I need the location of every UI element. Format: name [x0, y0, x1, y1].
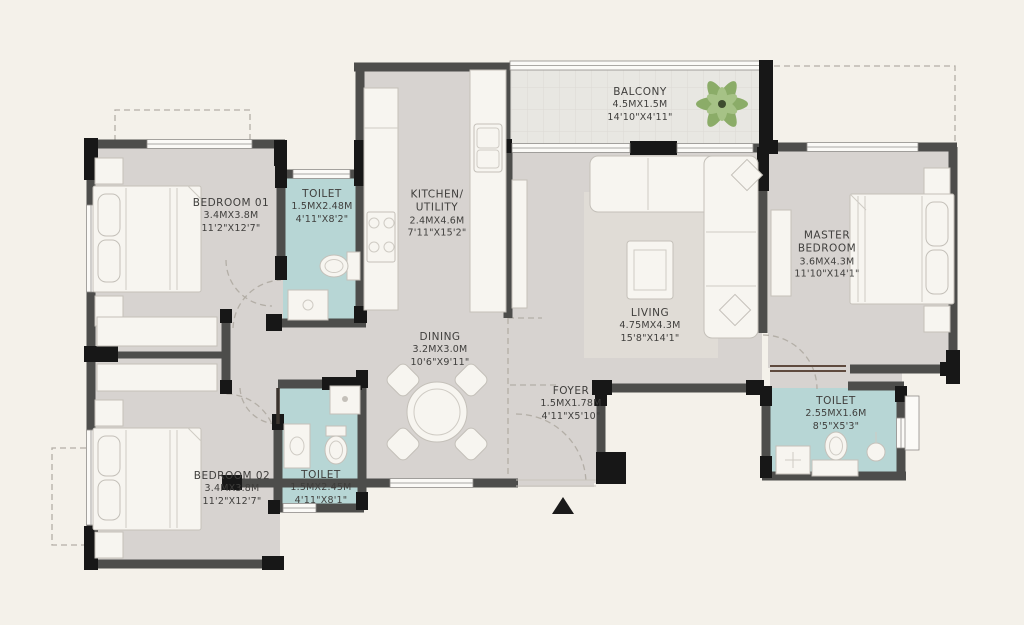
room-label-kitchen-utility: KITCHEN/ UTILITY 2.4MX4.6M 7'11"X15'2": [401, 188, 473, 239]
bedroom01-furniture: [93, 158, 217, 346]
window-toilet01-top: [293, 170, 350, 179]
kitchen-counter: [364, 88, 398, 310]
side-table-icon: [924, 306, 950, 332]
side-table-icon: [95, 532, 123, 558]
room-label-toilet02: TOILET 1.5MX2.45M 4'11"X8'1": [282, 469, 360, 507]
washbasin-icon: [288, 290, 328, 320]
wardrobe-icon: [771, 210, 791, 296]
bed-icon: [93, 186, 201, 292]
side-table-icon: [95, 400, 123, 426]
room-label-dining: DINING 3.2MX3.0M 10'6"X9'11": [393, 331, 487, 369]
dining-table-icon: [407, 382, 467, 442]
wardrobe-icon: [97, 317, 217, 346]
room-label-living: LIVING 4.75MX4.3M 15'8"X14'1": [595, 307, 705, 345]
window-bedroom01-top: [147, 140, 252, 149]
window-toilet-master-right: [897, 418, 906, 448]
hob-icon: [367, 212, 395, 262]
sink-icon: [474, 124, 502, 172]
room-label-toilet01: TOILET 1.5MX2.48M 4'11"X8'2": [283, 188, 361, 226]
room-label-balcony: BALCONY 4.5MX1.5M 14'10"X4'11": [585, 86, 695, 124]
window-balcony-right: [677, 144, 753, 153]
ledge-outline-master: [772, 66, 955, 144]
washbasin-icon: [284, 424, 310, 468]
room-label-foyer: FOYER 1.5MX1.78M 4'11"X5'10": [526, 385, 616, 423]
floor-plan-drawing: [0, 0, 1024, 625]
toilet-master-ledge: [905, 396, 919, 450]
washbasin-icon: [776, 446, 810, 474]
entrance-arrow-icon: [552, 497, 574, 514]
room-label-bedroom02: BEDROOM 02 3.4MX3.8M 11'2"X12'7": [187, 470, 277, 508]
coffee-table-icon: [627, 241, 673, 299]
shower-icon: [330, 386, 360, 414]
side-table-icon: [95, 158, 123, 184]
room-label-bedroom01: BEDROOM 01 3.4MX3.8M 11'2"X12'7": [186, 197, 276, 235]
ledge-outline-bedroom01: [115, 110, 250, 141]
room-label-master-bedroom: MASTER BEDROOM 3.6MX4.3M 11'10"X14'1": [789, 229, 865, 280]
tv-console-icon: [512, 180, 527, 308]
window-master-top: [807, 143, 918, 152]
kitchen-counter: [470, 70, 506, 312]
side-table-icon: [924, 168, 950, 194]
bed-icon: [93, 428, 201, 530]
room-label-toilet-master: TOILET 2.55MX1.6M 8'5"X5'3": [789, 395, 883, 433]
window-balcony-left: [512, 144, 630, 153]
bed-icon: [850, 194, 954, 304]
floor-plan: BEDROOM 01 3.4MX3.8M 11'2"X12'7" TOILET …: [0, 0, 1024, 625]
window-dining-bottom: [390, 479, 473, 488]
wc-icon: [325, 426, 347, 464]
ledge-outline-bedroom02: [52, 448, 86, 545]
wardrobe-icon: [97, 364, 217, 391]
